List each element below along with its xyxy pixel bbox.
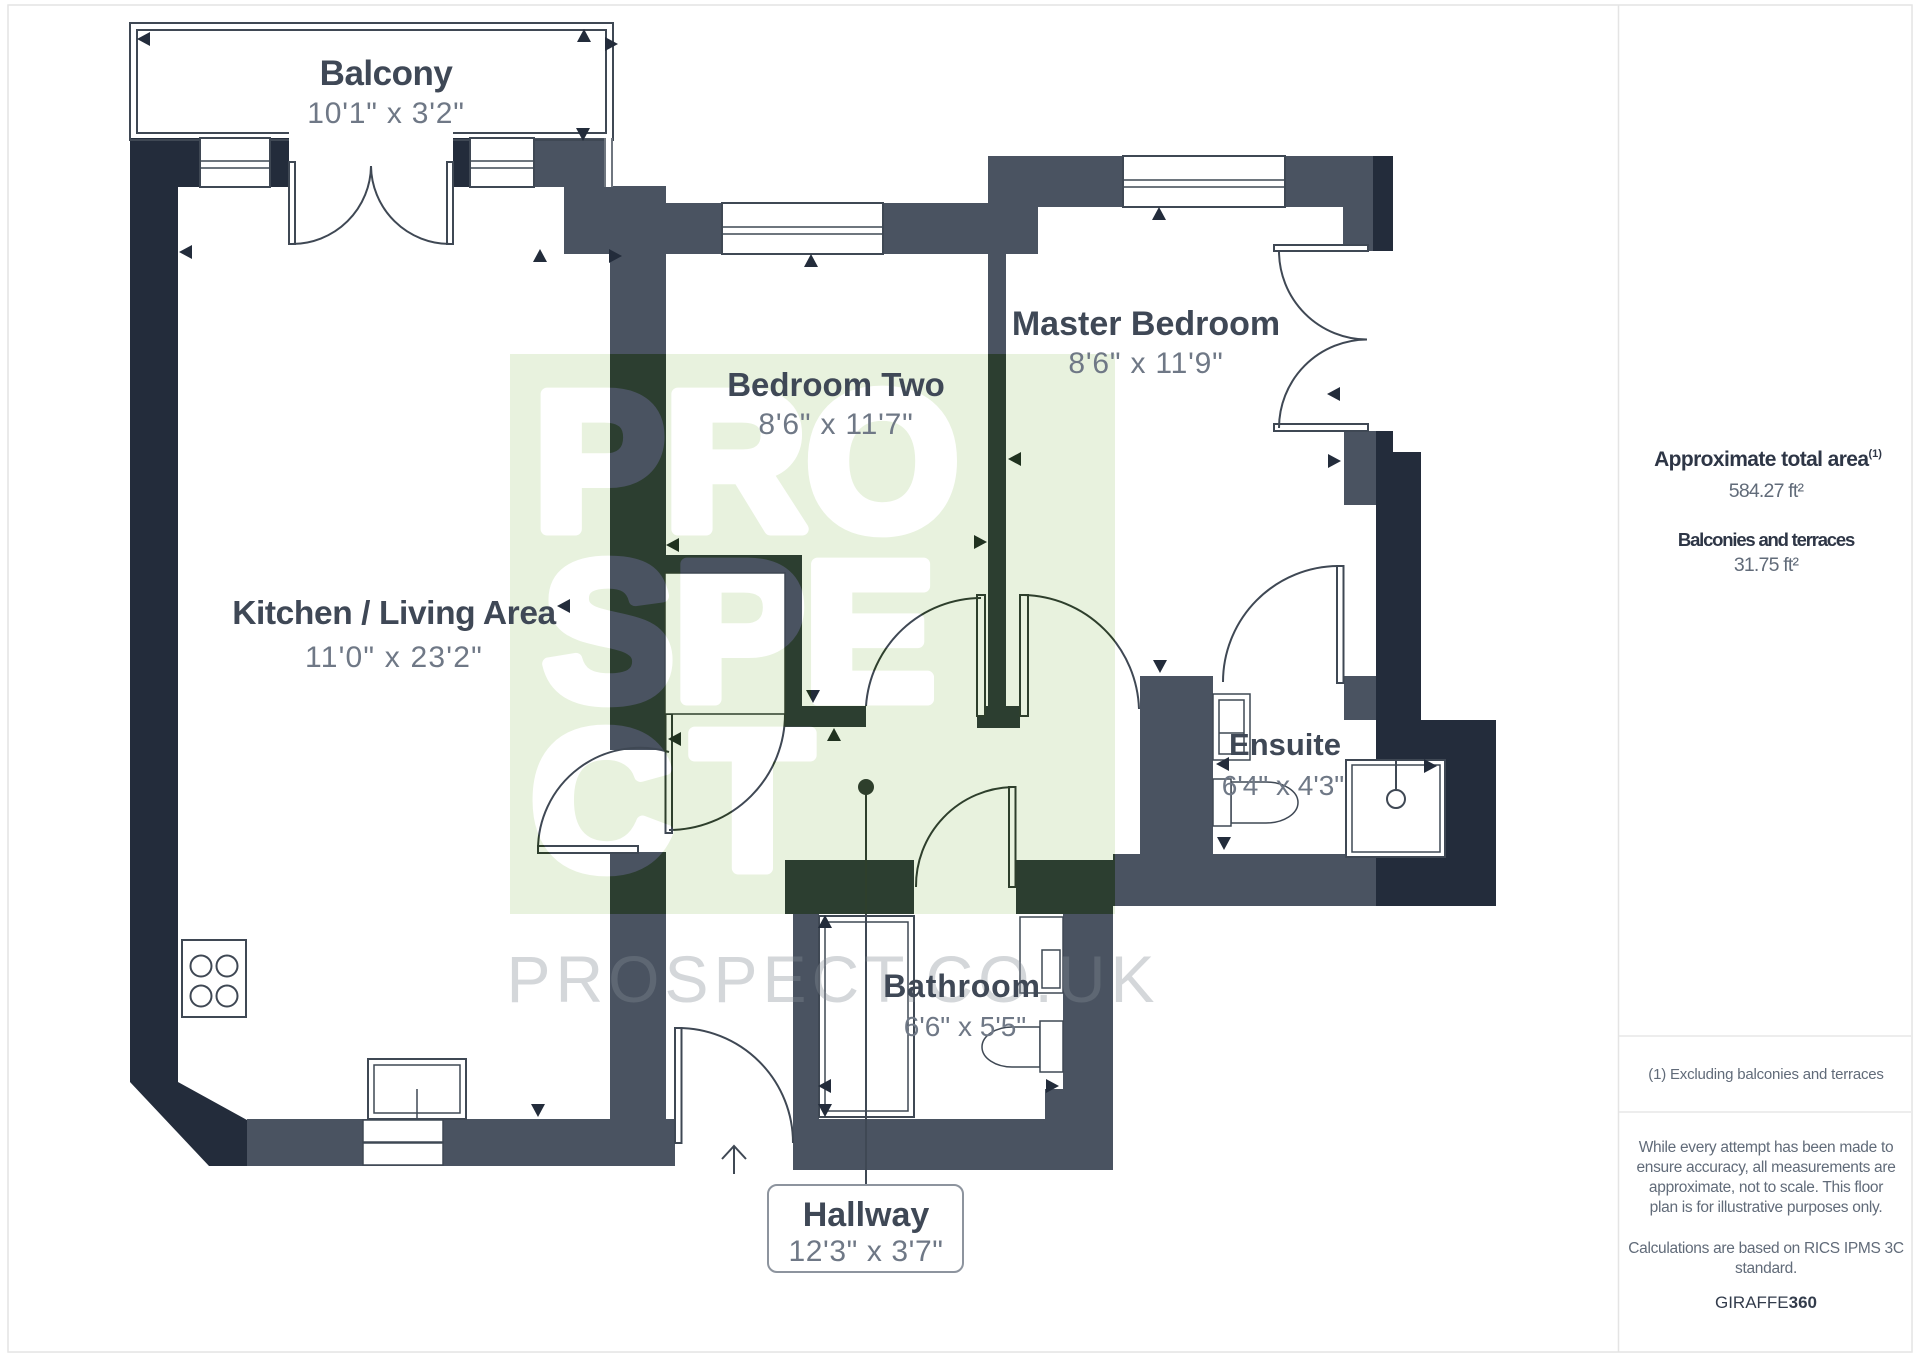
svg-text:11'0" x 23'2": 11'0" x 23'2" (305, 641, 483, 674)
svg-text:approximate, not to scale. Thi: approximate, not to scale. This floor (1649, 1179, 1883, 1196)
svg-text:Bathroom: Bathroom (883, 968, 1041, 1004)
svg-text:584.27 ft²: 584.27 ft² (1729, 480, 1805, 502)
svg-text:Hallway: Hallway (803, 1196, 930, 1234)
svg-text:ensure accuracy, all measureme: ensure accuracy, all measurements are (1636, 1159, 1895, 1176)
svg-text:Balconies and terraces: Balconies and terraces (1678, 529, 1855, 550)
svg-text:Balcony: Balcony (320, 54, 454, 93)
svg-text:8'6" x 11'9": 8'6" x 11'9" (1068, 347, 1223, 380)
svg-text:Ensuite: Ensuite (1229, 727, 1341, 762)
svg-text:12'3" x 3'7": 12'3" x 3'7" (788, 1235, 943, 1268)
svg-text:(1) Excluding balconies and te: (1) Excluding balconies and terraces (1648, 1066, 1883, 1083)
svg-text:Calculations are based on RICS: Calculations are based on RICS IPMS 3C (1628, 1240, 1904, 1257)
svg-text:standard.: standard. (1735, 1260, 1797, 1277)
svg-text:6'4" x 4'3": 6'4" x 4'3" (1222, 770, 1344, 801)
svg-text:Kitchen / Living Area: Kitchen / Living Area (232, 595, 556, 632)
svg-text:GIRAFFE360: GIRAFFE360 (1715, 1293, 1817, 1312)
svg-text:PROSPECT.CO.UK: PROSPECT.CO.UK (506, 942, 1159, 1016)
svg-text:31.75 ft²: 31.75 ft² (1734, 554, 1800, 576)
svg-text:While every attempt has been m: While every attempt has been made to (1639, 1139, 1894, 1156)
svg-text:Bedroom Two: Bedroom Two (727, 366, 945, 403)
svg-text:10'1" x 3'2": 10'1" x 3'2" (307, 97, 464, 130)
svg-text:6'6" x 5'5": 6'6" x 5'5" (904, 1011, 1026, 1042)
svg-text:Approximate total area(1): Approximate total area(1) (1654, 448, 1882, 471)
svg-text:Master Bedroom: Master Bedroom (1012, 305, 1280, 343)
svg-text:8'6" x 11'7": 8'6" x 11'7" (758, 408, 913, 441)
svg-text:plan is for illustrative purpo: plan is for illustrative purposes only. (1650, 1199, 1883, 1216)
